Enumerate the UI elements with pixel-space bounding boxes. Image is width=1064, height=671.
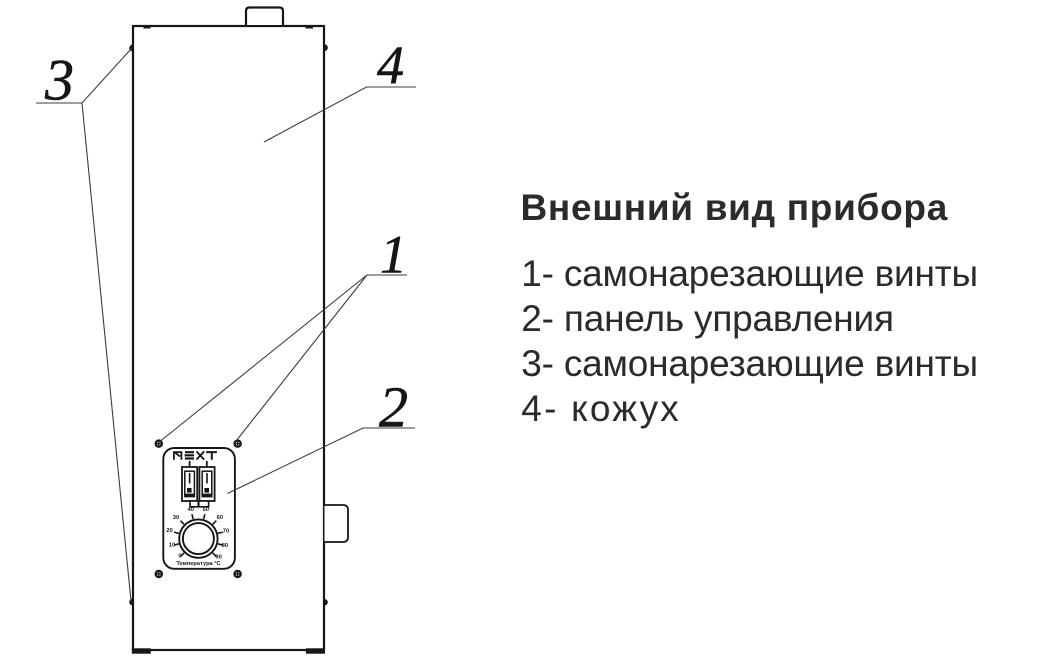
svg-text:2: 2	[379, 375, 408, 440]
svg-text:Температура °C: Температура °C	[176, 561, 220, 567]
svg-text:90: 90	[215, 555, 221, 561]
svg-text:70: 70	[223, 529, 229, 535]
svg-text:20: 20	[166, 528, 172, 534]
svg-text:10: 10	[169, 543, 175, 549]
svg-text:40: 40	[187, 507, 193, 513]
svg-text:1: 1	[380, 225, 407, 285]
svg-text:4: 4	[377, 35, 404, 95]
svg-text:3: 3	[44, 48, 74, 113]
svg-text:50: 50	[203, 507, 209, 513]
svg-text:30: 30	[173, 515, 179, 521]
svg-text:60: 60	[217, 515, 223, 521]
svg-text:0: 0	[178, 554, 181, 560]
svg-text:80: 80	[222, 543, 228, 549]
